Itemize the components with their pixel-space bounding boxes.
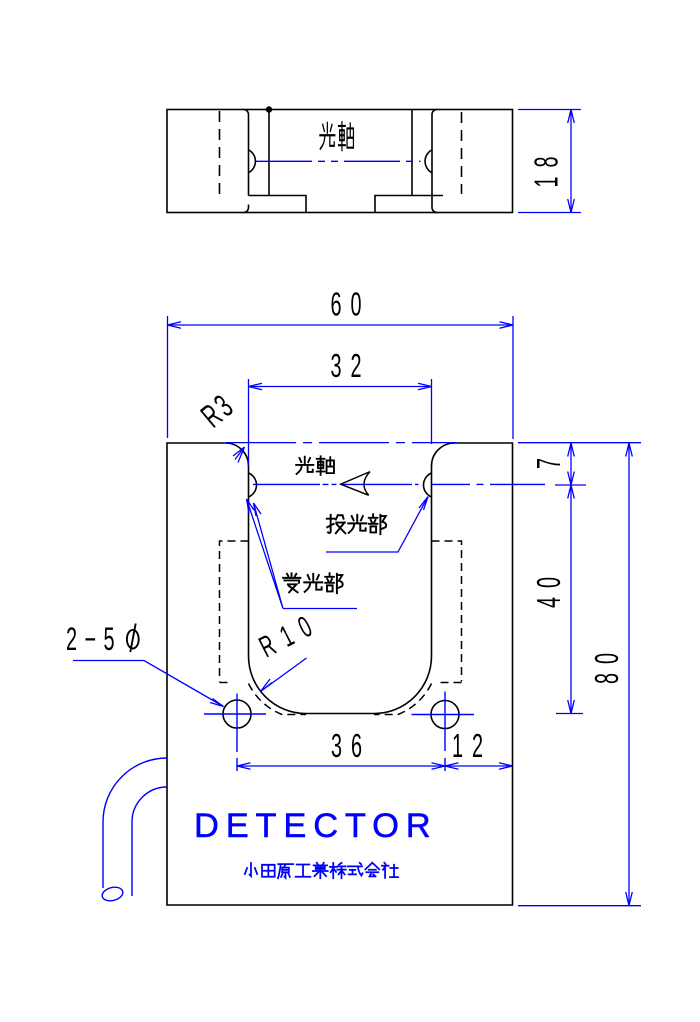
- svg-text:7: 7: [530, 449, 568, 469]
- svg-text:R10: R10: [254, 605, 326, 664]
- svg-text:32: 32: [330, 347, 370, 385]
- svg-text:DETECTOR: DETECTOR: [194, 807, 438, 845]
- svg-text:60: 60: [330, 285, 370, 323]
- svg-text:36: 36: [331, 727, 371, 765]
- svg-text:80: 80: [588, 644, 626, 684]
- svg-text:18: 18: [527, 147, 565, 187]
- svg-text:12: 12: [452, 727, 492, 765]
- svg-text:40: 40: [530, 568, 568, 608]
- svg-text:R3: R3: [194, 386, 242, 435]
- svg-text:2−5: 2−5: [66, 621, 122, 657]
